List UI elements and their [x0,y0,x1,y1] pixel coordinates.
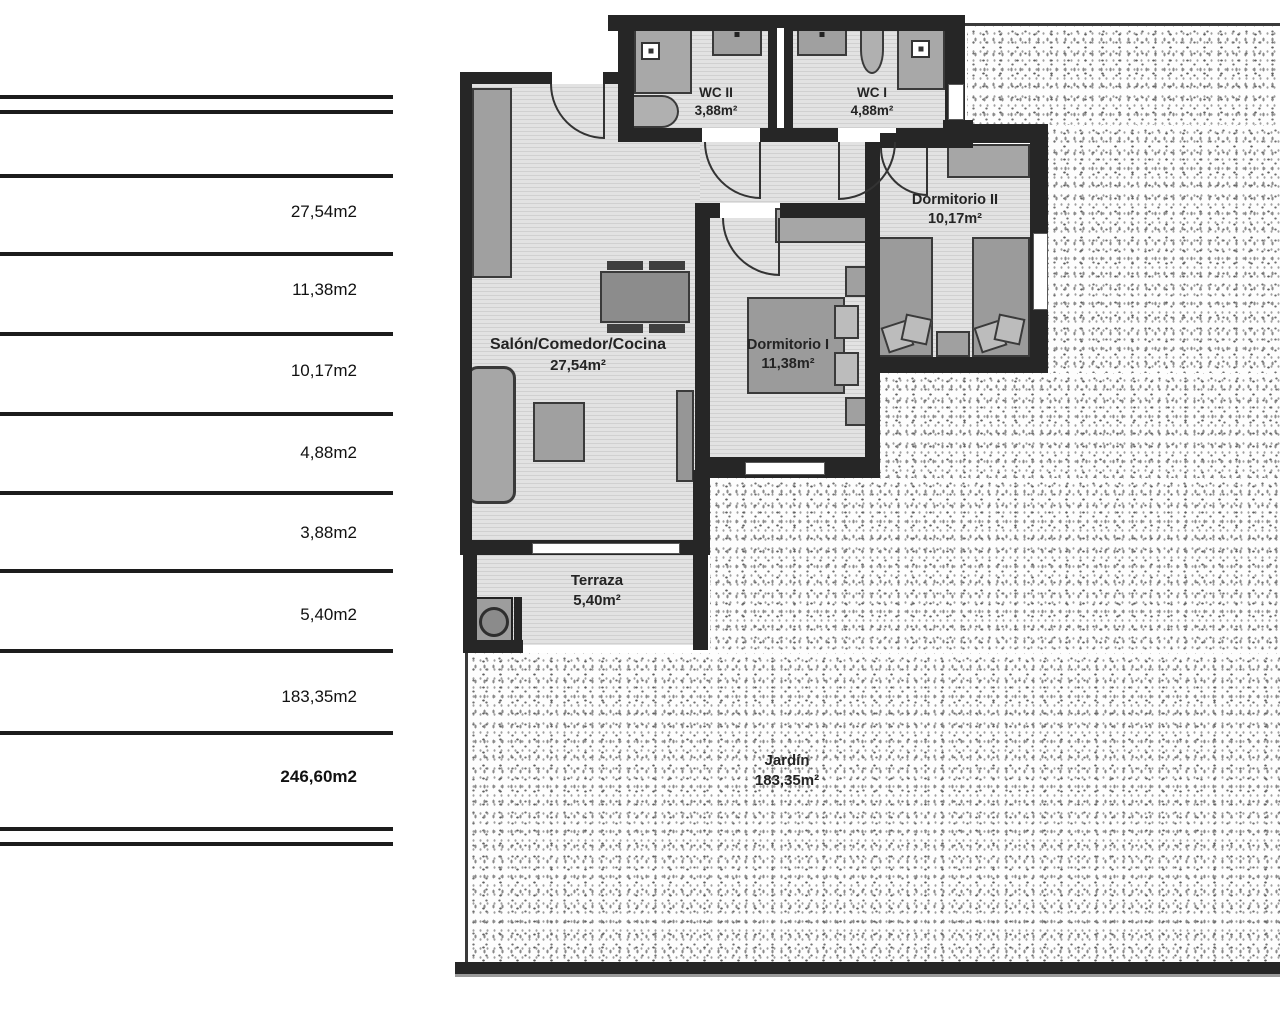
table-total-value: 246,60m2 [157,766,357,788]
table-rule [0,332,393,336]
wc1-shower-unit [797,28,847,56]
table-rule [0,110,393,114]
coffee-table [533,402,585,462]
wall [693,470,710,555]
wall [965,124,1048,143]
pillow [900,313,932,345]
table-rule [0,731,393,735]
wall [695,203,710,470]
room-area: 3,88m² [656,102,776,120]
wall [460,72,552,84]
wall [865,142,880,478]
wall [693,555,708,650]
wall [603,72,633,84]
table-row-value: 5,40m2 [157,604,357,626]
room-name: Dormitorio II [885,191,1025,210]
nightstand [936,331,970,357]
garden-area [1048,125,1280,375]
garden-area [710,478,1280,653]
table-row-value: 183,35m2 [157,686,357,708]
room-label-terraza: Terraza 5,40m² [537,571,657,610]
wall [760,128,838,142]
sliding-glass-door [532,543,680,554]
garden-area [880,373,1280,480]
wall [865,357,1048,373]
room-area: 183,35m² [727,771,847,791]
room-name: WC II [656,84,776,102]
dining-chair [607,324,643,333]
room-area: 11,38m² [718,355,858,374]
nightstand [845,397,867,426]
room-label-jardin: Jardín 183,35m² [727,751,847,790]
table-rule [0,649,393,653]
room-area: 27,54m² [478,356,678,376]
room-name: Dormitorio I [718,336,858,355]
room-name: Jardín [727,751,847,771]
wall [784,28,793,132]
garden-top-boundary [965,23,1280,26]
table-row-value: 27,54m2 [157,201,357,223]
room-name: Salón/Comedor/Cocina [478,335,678,356]
wall [463,555,477,652]
garden-area [967,26,1280,125]
toilet-icon [860,26,884,74]
room-label-wc1: WC I 4,88m² [812,84,932,119]
washbasin-icon [641,42,660,60]
room-name: Terraza [537,571,657,591]
table-rule [0,842,393,846]
window [948,84,964,120]
dining-chair [607,261,643,270]
dining-table [600,271,690,323]
table-rule [0,491,393,495]
table-rule [0,827,393,831]
pillow [834,305,859,339]
window [1033,233,1048,310]
table-rule [0,412,393,416]
plot-boundary-wall [455,962,1280,974]
tv-unit [676,390,694,482]
garden-left-boundary [465,652,468,962]
table-rule [0,252,393,256]
floorplan-page: 27,54m2 11,38m2 10,17m2 4,88m2 3,88m2 5,… [0,0,1280,1024]
wardrobe [947,144,1030,178]
room-label-salon: Salón/Comedor/Cocina 27,54m² [478,335,678,375]
room-area: 5,40m² [537,591,657,611]
wall [695,203,720,218]
kitchen-counter [472,88,512,278]
pillow [993,313,1025,345]
washbasin-icon [911,40,930,58]
dining-chair [649,261,685,270]
table-row-value: 10,17m2 [157,360,357,382]
room-label-dorm2: Dormitorio II 10,17m² [885,191,1025,229]
plot-boundary-shadow [455,974,1280,977]
room-name: WC I [812,84,932,102]
table-row-value: 3,88m2 [157,522,357,544]
room-label-dorm1: Dormitorio I 11,38m² [718,336,858,374]
wc1-vanity [897,28,945,90]
washing-machine [475,597,513,642]
room-area: 10,17m² [885,210,1025,229]
garden-area [467,653,1280,962]
window [745,462,825,475]
table-row-value: 4,88m2 [157,442,357,464]
dining-chair [649,324,685,333]
sofa [466,366,516,504]
table-rule [0,174,393,178]
nightstand [845,266,867,297]
wall-cavity [777,28,784,132]
wall [634,128,702,142]
wall [514,597,522,644]
table-rule [0,95,393,99]
room-area: 4,88m² [812,102,932,120]
table-row-value: 11,38m2 [157,279,357,301]
room-label-wc2: WC II 3,88m² [656,84,776,119]
table-rule [0,569,393,573]
wc2-shower-unit [712,28,762,56]
wall [460,72,472,555]
